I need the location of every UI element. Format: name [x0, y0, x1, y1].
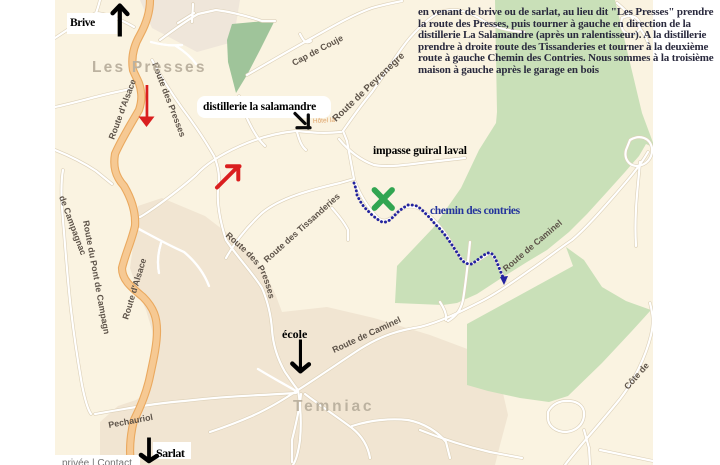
svg-text:privée | Contact: privée | Contact — [62, 458, 132, 465]
svg-text:Hôtel la: Hôtel la — [313, 117, 336, 125]
svg-text:Les Presses: Les Presses — [92, 59, 207, 76]
svg-text:Temniac: Temniac — [293, 398, 374, 415]
